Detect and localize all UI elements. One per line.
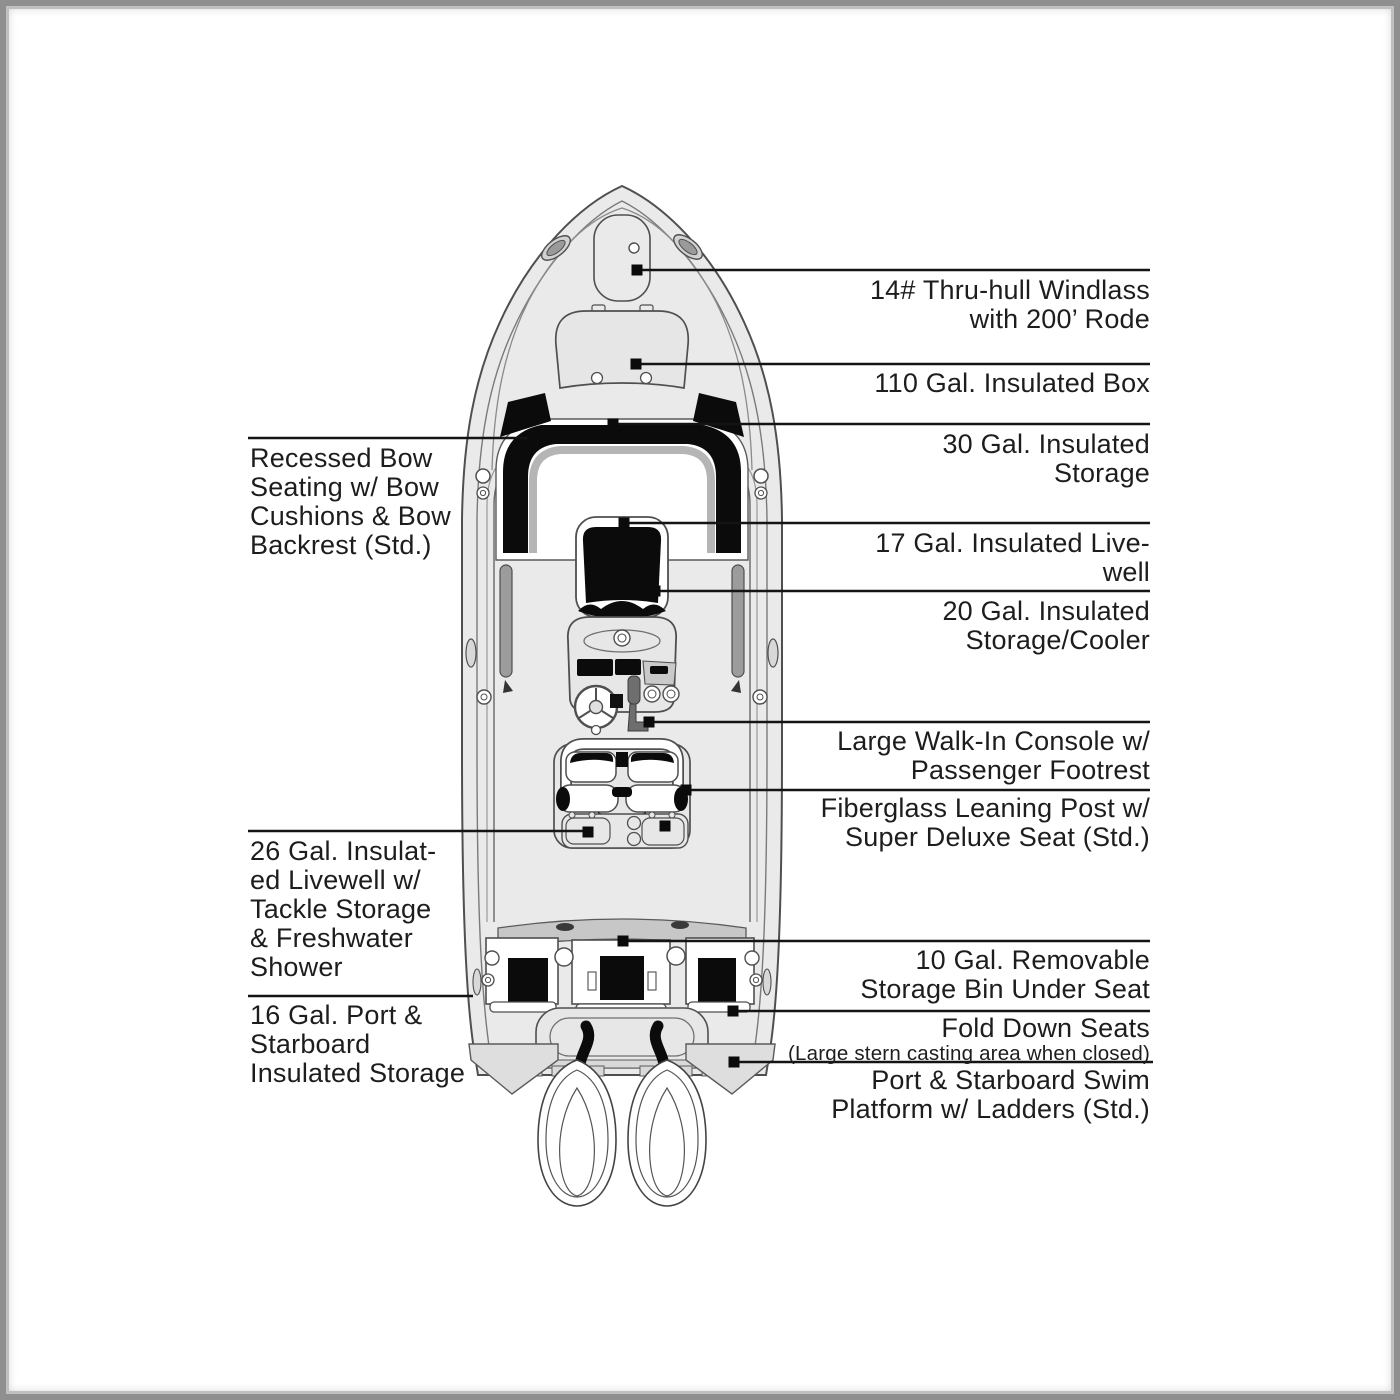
callout-insulated-livewell-17: 17 Gal. Insulated Live- well [875,529,1150,587]
callout-insulated-box-110: 110 Gal. Insulated Box [874,369,1150,398]
callout-line: Tackle Storage [250,895,436,924]
callout-line: 26 Gal. Insulat- [250,837,436,866]
deck-cleat-port [556,923,574,931]
callout-line: & Freshwater [250,924,436,953]
anchor-locker [594,215,650,301]
callout-line: Passenger Footrest [837,756,1150,785]
callout-leaning-post: Fiberglass Leaning Post w/ Super Deluxe … [821,794,1150,852]
callout-windlass: 14# Thru-hull Windlass with 200’ Rode [870,276,1150,334]
callout-recessed-bow-seating: Recessed Bow Seating w/ Bow Cushions & B… [250,444,451,560]
callout-line: Platform w/ Ladders (Std.) [831,1095,1150,1124]
fold-down-seat-port [486,938,558,1012]
callout-subcaption: (Large stern casting area when closed) [788,1043,1150,1065]
callout-insulated-livewell-26: 26 Gal. Insulat- ed Livewell w/ Tackle S… [250,837,436,982]
callout-fold-down-seats: Fold Down Seats (Large stern casting are… [788,1014,1150,1065]
electronics-display-right [615,659,641,675]
swim-platform-port [469,1044,558,1094]
engine-port [538,1060,616,1206]
callout-line: Starboard [250,1030,465,1059]
console-latch [614,630,630,646]
callout-line: Backrest (Std.) [250,531,451,560]
callout-line: Recessed Bow [250,444,451,473]
gauge-right [663,686,679,702]
callout-line: with 200’ Rode [870,305,1150,334]
callout-line: 17 Gal. Insulated Live- [875,529,1150,558]
callout-line: Super Deluxe Seat (Std.) [821,823,1150,852]
callout-line: ed Livewell w/ [250,866,436,895]
engine-starboard [628,1060,706,1206]
splash-well [536,1008,708,1066]
callout-line: Fiberglass Leaning Post w/ [821,794,1150,823]
callout-line: Shower [250,953,436,982]
boat-top-view-drawing [0,0,1400,1400]
boat-deck-plan-figure: 14# Thru-hull Windlass with 200’ Rode 11… [0,0,1400,1400]
callout-removable-storage-bin-10: 10 Gal. Removable Storage Bin Under Seat [860,946,1150,1004]
electronics-display-left [577,659,613,676]
callout-line: well [875,558,1150,587]
insulated-box-110gal [556,305,689,388]
callout-swim-platform: Port & Starboard Swim Platform w/ Ladder… [831,1066,1150,1124]
callout-line: 16 Gal. Port & [250,1001,465,1030]
deck-cleat-starboard [671,921,689,929]
callout-line: 30 Gal. Insulated [942,430,1150,459]
callout-line: 20 Gal. Insulated [942,597,1150,626]
leaning-post [554,744,690,848]
callout-insulated-storage-30: 30 Gal. Insulated Storage [942,430,1150,488]
gauge-left [644,686,660,702]
callout-line: 14# Thru-hull Windlass [870,276,1150,305]
console-forward-seat-livewell [576,517,668,618]
callout-line: Seating w/ Bow [250,473,451,502]
callout-insulated-storage-cooler-20: 20 Gal. Insulated Storage/Cooler [942,597,1150,655]
callout-line: 110 Gal. Insulated Box [874,369,1150,398]
aft-deck [473,919,771,1014]
fold-down-seat-starboard [686,938,754,1012]
callout-line: Insulated Storage [250,1059,465,1088]
callout-line: Large Walk-In Console w/ [837,727,1150,756]
callout-port-starboard-storage-16: 16 Gal. Port & Starboard Insulated Stora… [250,1001,465,1088]
callout-line: Cushions & Bow [250,502,451,531]
fold-down-seat-center [572,940,670,1014]
callout-line: Storage Bin Under Seat [860,975,1150,1004]
swim-platform-starboard [686,1044,775,1094]
callout-line: 10 Gal. Removable [860,946,1150,975]
callout-walk-in-console: Large Walk-In Console w/ Passenger Footr… [837,727,1150,785]
callout-line: Port & Starboard Swim [831,1066,1150,1095]
callout-line: Storage/Cooler [942,626,1150,655]
callout-line: Fold Down Seats [788,1014,1150,1043]
callout-line: Storage [942,459,1150,488]
